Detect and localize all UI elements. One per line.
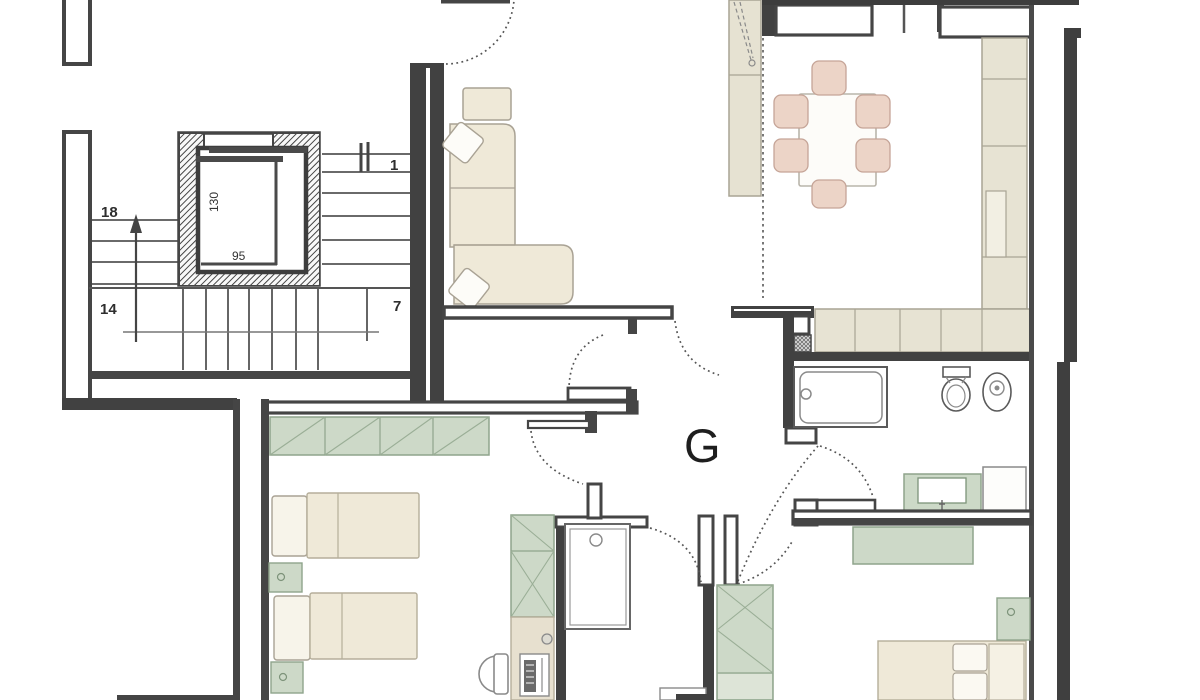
svg-text:18: 18 — [101, 204, 118, 221]
svg-text:G: G — [684, 419, 721, 472]
svg-text:1: 1 — [390, 157, 398, 174]
svg-text:14: 14 — [100, 301, 117, 318]
svg-text:95: 95 — [232, 249, 246, 263]
svg-text:7: 7 — [393, 298, 401, 315]
svg-text:130: 130 — [207, 192, 221, 212]
